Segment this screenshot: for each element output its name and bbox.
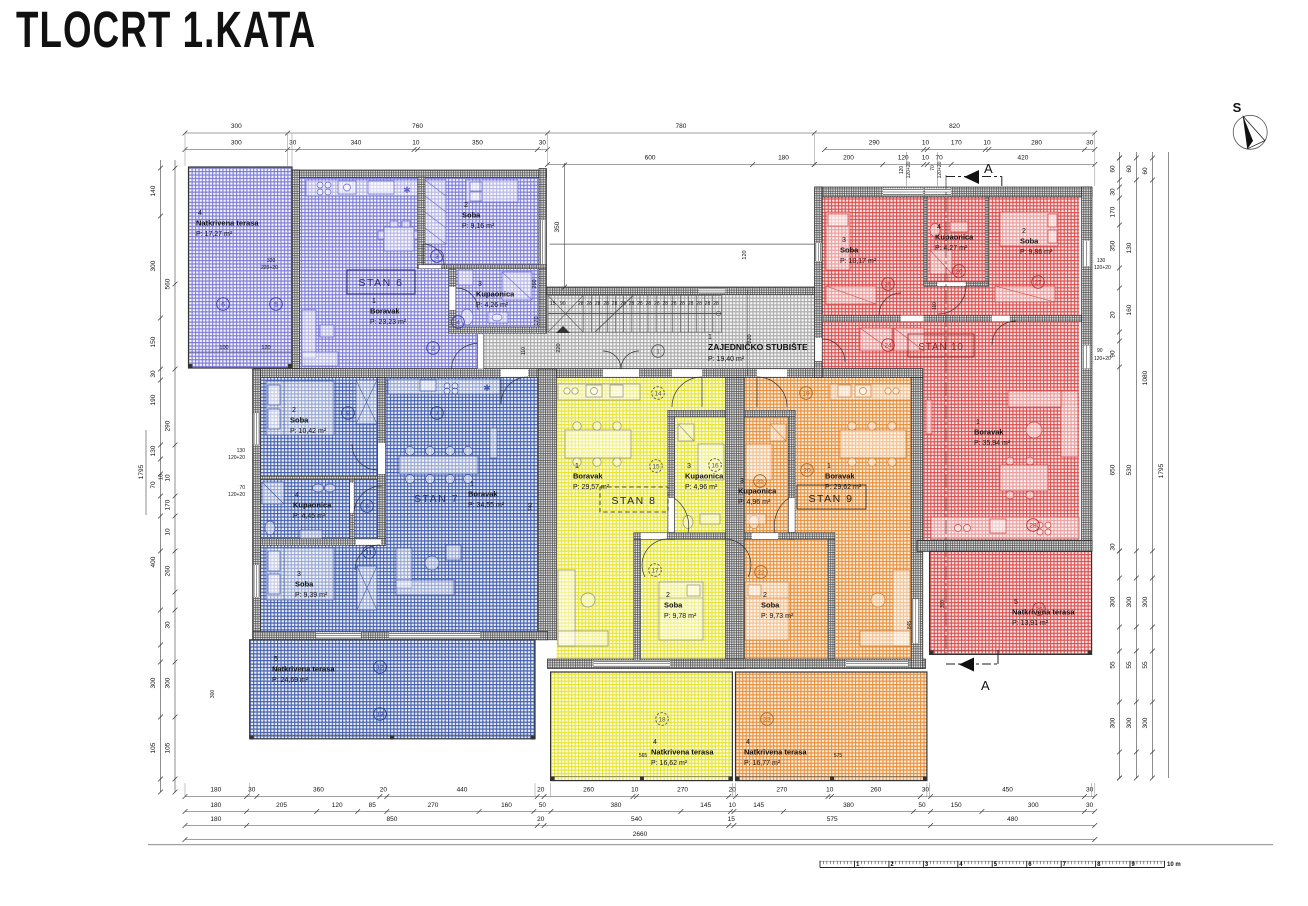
svg-text:Soba: Soba	[664, 601, 683, 610]
svg-text:3: 3	[478, 281, 482, 288]
svg-text:P: 24,69 m²: P: 24,69 m²	[272, 677, 309, 684]
svg-text:P: 9,39 m²: P: 9,39 m²	[295, 592, 328, 599]
svg-text:600: 600	[645, 155, 656, 162]
svg-text:740: 740	[528, 503, 534, 512]
svg-text:540: 540	[631, 816, 642, 823]
svg-text:350: 350	[554, 221, 561, 232]
svg-text:300: 300	[1110, 717, 1117, 728]
svg-text:10: 10	[729, 802, 737, 809]
svg-text:2: 2	[666, 592, 670, 599]
svg-text:STAN 9: STAN 9	[809, 493, 854, 505]
svg-text:55: 55	[1110, 661, 1117, 669]
svg-text:3: 3	[687, 463, 691, 470]
svg-text:30: 30	[1086, 787, 1094, 794]
svg-text:300: 300	[1142, 717, 1149, 728]
svg-text:6: 6	[221, 301, 225, 308]
svg-text:2660: 2660	[633, 831, 648, 838]
svg-text:28: 28	[646, 301, 652, 307]
svg-text:350: 350	[1110, 240, 1117, 251]
svg-text:Soba: Soba	[761, 601, 780, 610]
svg-text:P: 23,23 m²: P: 23,23 m²	[370, 319, 407, 326]
svg-text:2: 2	[464, 202, 468, 209]
svg-text:10 m: 10 m	[1167, 862, 1181, 868]
svg-text:130: 130	[1126, 242, 1133, 253]
svg-text:15: 15	[728, 816, 736, 823]
svg-text:28: 28	[603, 301, 609, 307]
svg-text:P: 9,16 m²: P: 9,16 m²	[462, 223, 495, 230]
svg-text:4: 4	[198, 210, 202, 217]
svg-text:300: 300	[1126, 717, 1133, 728]
svg-text:3: 3	[740, 478, 744, 485]
svg-text:P: 34,55 m²: P: 34,55 m²	[468, 502, 505, 509]
svg-text:Boravak: Boravak	[370, 307, 400, 316]
svg-text:60: 60	[1110, 165, 1117, 173]
svg-text:Natkrivena terasa: Natkrivena terasa	[744, 748, 807, 757]
svg-text:1: 1	[656, 348, 660, 355]
svg-text:28: 28	[696, 301, 702, 307]
svg-text:340: 340	[351, 140, 362, 147]
svg-text:P: 10,17 m²: P: 10,17 m²	[840, 258, 877, 265]
svg-text:170: 170	[951, 140, 962, 147]
svg-text:300: 300	[210, 690, 216, 699]
svg-text:28: 28	[629, 301, 635, 307]
svg-text:130: 130	[237, 448, 246, 454]
svg-text:STAN 8: STAN 8	[612, 495, 657, 507]
svg-text:30: 30	[150, 370, 157, 378]
svg-text:1795: 1795	[1158, 463, 1165, 478]
svg-text:260: 260	[870, 787, 881, 794]
svg-text:400: 400	[150, 556, 157, 567]
svg-text:30: 30	[1110, 188, 1117, 196]
svg-text:55: 55	[1126, 661, 1133, 669]
svg-text:180: 180	[778, 155, 789, 162]
svg-text:P: 4,27 m²: P: 4,27 m²	[935, 245, 968, 252]
svg-text:Soba: Soba	[295, 580, 314, 589]
svg-text:Natkrivena terasa: Natkrivena terasa	[1012, 608, 1075, 617]
svg-text:820: 820	[949, 123, 960, 130]
svg-text:160: 160	[1126, 304, 1133, 315]
svg-text:19: 19	[802, 390, 810, 397]
svg-text:5: 5	[274, 301, 278, 308]
svg-text:Soba: Soba	[1020, 237, 1039, 246]
svg-text:26: 26	[955, 268, 963, 275]
svg-text:P: 9,78 m²: P: 9,78 m²	[664, 613, 697, 620]
svg-text:20: 20	[803, 467, 811, 474]
svg-text:110: 110	[932, 302, 938, 310]
svg-text:20: 20	[380, 787, 388, 794]
svg-text:5: 5	[274, 656, 278, 663]
svg-text:120+20: 120+20	[228, 455, 245, 461]
svg-text:21: 21	[756, 478, 764, 485]
svg-text:8: 8	[365, 503, 369, 510]
svg-text:180: 180	[210, 787, 221, 794]
svg-text:300: 300	[1126, 596, 1133, 607]
svg-text:P: 13,91 m²: P: 13,91 m²	[1012, 620, 1049, 627]
svg-text:110: 110	[521, 347, 527, 355]
svg-text:120+20: 120+20	[228, 492, 245, 498]
svg-text:120+20: 120+20	[937, 161, 943, 178]
svg-text:300: 300	[940, 600, 946, 609]
svg-text:TLOCRT 1.KATA: TLOCRT 1.KATA	[16, 2, 316, 58]
svg-text:650: 650	[1110, 464, 1117, 475]
svg-text:260: 260	[532, 279, 538, 288]
svg-text:270: 270	[677, 787, 688, 794]
svg-text:30: 30	[922, 787, 930, 794]
svg-text:140: 140	[150, 185, 157, 196]
svg-text:70: 70	[150, 481, 157, 489]
svg-text:10: 10	[165, 528, 172, 536]
svg-text:850: 850	[386, 816, 397, 823]
svg-text:480: 480	[1007, 816, 1018, 823]
svg-text:9: 9	[346, 410, 350, 417]
svg-text:70: 70	[239, 485, 245, 491]
svg-text:S: S	[1233, 100, 1242, 115]
svg-text:Boravak: Boravak	[974, 428, 1004, 437]
svg-text:15: 15	[550, 301, 556, 307]
svg-text:1: 1	[372, 298, 376, 305]
svg-text:STAN 7: STAN 7	[414, 493, 459, 505]
svg-text:380: 380	[843, 802, 854, 809]
svg-text:28: 28	[654, 301, 660, 307]
svg-text:50: 50	[539, 802, 547, 809]
svg-text:16: 16	[711, 462, 719, 469]
svg-text:Soba: Soba	[840, 246, 859, 255]
svg-text:27: 27	[1034, 279, 1042, 286]
svg-text:P: 29,57 m²: P: 29,57 m²	[573, 484, 610, 491]
svg-text:320: 320	[267, 258, 276, 264]
svg-text:P: 10,42 m²: P: 10,42 m²	[290, 428, 327, 435]
svg-text:P: 9,73 m²: P: 9,73 m²	[761, 613, 794, 620]
svg-text:17: 17	[651, 567, 659, 574]
svg-text:105: 105	[150, 742, 157, 753]
svg-text:220: 220	[556, 343, 562, 352]
svg-text:350: 350	[472, 140, 483, 147]
svg-text:300: 300	[150, 677, 157, 688]
svg-text:30: 30	[539, 140, 547, 147]
svg-text:P: 17,27 m²: P: 17,27 m²	[196, 231, 233, 238]
svg-text:Boravak: Boravak	[573, 472, 603, 481]
svg-text:STAN 6: STAN 6	[359, 277, 404, 289]
svg-text:260: 260	[583, 787, 594, 794]
svg-text:565: 565	[639, 753, 648, 759]
svg-text:✱: ✱	[403, 185, 411, 195]
svg-text:180: 180	[210, 816, 221, 823]
svg-text:10: 10	[631, 787, 639, 794]
svg-text:10: 10	[826, 787, 834, 794]
svg-text:220+20: 220+20	[261, 265, 278, 271]
svg-text:STAN 10: STAN 10	[918, 342, 963, 353]
svg-text:60: 60	[1142, 167, 1149, 175]
svg-text:10: 10	[412, 140, 420, 147]
svg-text:290: 290	[165, 420, 172, 431]
svg-text:30: 30	[165, 621, 172, 629]
svg-text:Soba: Soba	[462, 211, 481, 220]
svg-text:130: 130	[150, 445, 157, 456]
svg-text:29: 29	[1035, 606, 1043, 613]
svg-text:25: 25	[884, 281, 892, 288]
svg-text:20: 20	[537, 787, 545, 794]
svg-text:Soba: Soba	[290, 416, 309, 425]
svg-text:130: 130	[1097, 258, 1106, 264]
svg-text:28: 28	[671, 301, 677, 307]
svg-text:150: 150	[951, 802, 962, 809]
svg-text:300: 300	[165, 677, 172, 688]
svg-text:28: 28	[663, 301, 669, 307]
svg-text:A: A	[984, 161, 993, 176]
svg-text:13: 13	[376, 711, 384, 718]
svg-text:P: 4,96 m²: P: 4,96 m²	[685, 484, 718, 491]
svg-text:30: 30	[1086, 802, 1094, 809]
svg-text:Natkrivena terasa: Natkrivena terasa	[272, 665, 335, 674]
svg-text:1: 1	[575, 463, 579, 470]
svg-text:50: 50	[918, 802, 926, 809]
svg-text:30: 30	[248, 787, 256, 794]
svg-text:20: 20	[537, 816, 545, 823]
svg-text:575: 575	[834, 753, 843, 759]
svg-text:300: 300	[231, 123, 242, 130]
svg-text:70: 70	[935, 155, 943, 162]
svg-text:Kupaonica: Kupaonica	[738, 487, 777, 496]
svg-text:3: 3	[842, 237, 846, 244]
svg-text:170: 170	[1110, 206, 1117, 217]
svg-text:Kupaonica: Kupaonica	[476, 290, 515, 299]
svg-text:145: 145	[753, 802, 764, 809]
svg-text:560: 560	[165, 278, 172, 289]
svg-text:4: 4	[653, 739, 657, 746]
svg-text:A: A	[981, 678, 990, 693]
svg-text:440: 440	[457, 787, 468, 794]
svg-text:300: 300	[150, 260, 157, 271]
svg-text:18: 18	[658, 716, 666, 723]
svg-text:11: 11	[366, 549, 373, 556]
svg-text:24: 24	[884, 342, 892, 349]
svg-text:P: 4,96 m²: P: 4,96 m²	[738, 499, 771, 506]
svg-text:3: 3	[435, 253, 439, 260]
svg-text:1: 1	[827, 463, 831, 470]
svg-text:1795: 1795	[138, 464, 145, 479]
svg-text:ZAJEDNIČKO STUBIŠTE: ZAJEDNIČKO STUBIŠTE	[708, 341, 808, 352]
svg-text:20: 20	[1110, 311, 1117, 319]
svg-text:Boravak: Boravak	[468, 490, 498, 499]
svg-text:P: 35,94 m²: P: 35,94 m²	[974, 440, 1011, 447]
svg-text:290: 290	[869, 140, 880, 147]
svg-text:30: 30	[1086, 140, 1094, 147]
svg-text:4: 4	[937, 224, 941, 231]
svg-text:2: 2	[1022, 228, 1026, 235]
svg-text:300: 300	[231, 140, 242, 147]
svg-text:190: 190	[150, 394, 157, 405]
svg-text:90: 90	[560, 301, 566, 307]
svg-text:145: 145	[700, 802, 711, 809]
svg-text:845: 845	[907, 621, 913, 630]
svg-text:420: 420	[1017, 155, 1028, 162]
svg-text:10: 10	[922, 140, 930, 147]
svg-text:270: 270	[776, 787, 787, 794]
svg-text:28: 28	[679, 301, 685, 307]
svg-text:120+20: 120+20	[1094, 356, 1111, 362]
svg-text:28: 28	[578, 301, 584, 307]
svg-text:60: 60	[1126, 165, 1133, 173]
svg-text:10: 10	[165, 474, 172, 482]
svg-text:P: 9,86 m²: P: 9,86 m²	[1020, 249, 1053, 256]
svg-text:3: 3	[297, 571, 301, 578]
svg-text:P: 16,62 m²: P: 16,62 m²	[651, 760, 688, 767]
svg-text:10: 10	[983, 140, 991, 147]
svg-text:P: 4,45 m²: P: 4,45 m²	[293, 513, 326, 520]
svg-text:200: 200	[843, 155, 854, 162]
svg-text:4: 4	[295, 492, 299, 499]
svg-text:300: 300	[1142, 596, 1149, 607]
svg-text:120: 120	[742, 250, 748, 259]
svg-text:Kupaonica: Kupaonica	[685, 472, 724, 481]
svg-text:P: 16,77 m²: P: 16,77 m²	[744, 760, 781, 767]
svg-text:100: 100	[219, 345, 228, 351]
svg-text:28: 28	[688, 301, 694, 307]
svg-text:2: 2	[292, 407, 296, 414]
svg-text:1080: 1080	[1142, 370, 1149, 385]
svg-text:120: 120	[332, 802, 343, 809]
svg-text:28: 28	[1029, 522, 1037, 529]
svg-text:Kupaonica: Kupaonica	[293, 501, 332, 510]
svg-text:380: 380	[610, 802, 621, 809]
svg-text:28: 28	[612, 301, 618, 307]
svg-text:4: 4	[746, 739, 750, 746]
svg-text:575: 575	[827, 816, 838, 823]
svg-text:30: 30	[1110, 543, 1117, 551]
svg-text:Natkrivena terasa: Natkrivena terasa	[651, 748, 714, 757]
svg-text:28: 28	[586, 301, 592, 307]
svg-text:220: 220	[747, 334, 753, 343]
svg-text:5: 5	[1014, 599, 1018, 606]
svg-text:Kupaonica: Kupaonica	[935, 233, 974, 242]
svg-text:170: 170	[534, 316, 540, 325]
svg-text:160: 160	[501, 802, 512, 809]
svg-text:✱: ✱	[483, 383, 491, 393]
svg-text:170: 170	[165, 499, 172, 510]
svg-text:1: 1	[470, 481, 474, 488]
svg-text:28: 28	[595, 301, 601, 307]
svg-text:120+20: 120+20	[906, 161, 912, 178]
svg-text:Boravak: Boravak	[825, 472, 855, 481]
svg-text:7: 7	[435, 410, 439, 417]
svg-text:12: 12	[376, 664, 384, 671]
svg-text:280: 280	[1031, 140, 1042, 147]
svg-text:30: 30	[289, 140, 297, 147]
svg-text:780: 780	[675, 123, 686, 130]
svg-text:28: 28	[713, 301, 719, 307]
svg-text:120: 120	[898, 155, 909, 162]
svg-text:28: 28	[620, 301, 626, 307]
svg-text:120+20: 120+20	[1094, 265, 1111, 271]
svg-text:760: 760	[412, 123, 423, 130]
svg-text:530: 530	[1126, 464, 1133, 475]
svg-text:205: 205	[276, 802, 287, 809]
svg-text:120: 120	[899, 166, 905, 175]
svg-text:23: 23	[763, 716, 771, 723]
svg-text:85: 85	[369, 802, 377, 809]
svg-text:1: 1	[976, 419, 980, 426]
svg-text:180: 180	[210, 802, 221, 809]
svg-text:105: 105	[165, 742, 172, 753]
svg-text:55: 55	[1142, 661, 1149, 669]
svg-text:2: 2	[763, 592, 767, 599]
svg-text:Natkrivena terasa: Natkrivena terasa	[196, 219, 259, 228]
svg-text:22: 22	[757, 569, 765, 576]
svg-text:260: 260	[165, 565, 172, 576]
svg-text:300: 300	[1110, 596, 1117, 607]
svg-text:270: 270	[428, 802, 439, 809]
svg-text:14: 14	[654, 390, 662, 397]
svg-text:120: 120	[261, 345, 270, 351]
svg-text:10: 10	[922, 155, 930, 162]
svg-text:450: 450	[1002, 787, 1013, 794]
svg-text:P: 19,40 m²: P: 19,40 m²	[708, 356, 745, 363]
svg-text:28: 28	[705, 301, 711, 307]
svg-text:28: 28	[637, 301, 643, 307]
svg-text:70: 70	[930, 165, 936, 171]
svg-text:300: 300	[1028, 802, 1039, 809]
svg-text:P: 4,26 m²: P: 4,26 m²	[476, 302, 509, 309]
svg-text:15: 15	[652, 463, 660, 470]
svg-text:360: 360	[313, 787, 324, 794]
svg-text:4: 4	[456, 319, 460, 326]
svg-text:90: 90	[1097, 348, 1103, 354]
svg-text:2: 2	[431, 345, 435, 352]
svg-text:1: 1	[708, 334, 712, 341]
svg-text:150: 150	[150, 336, 157, 347]
